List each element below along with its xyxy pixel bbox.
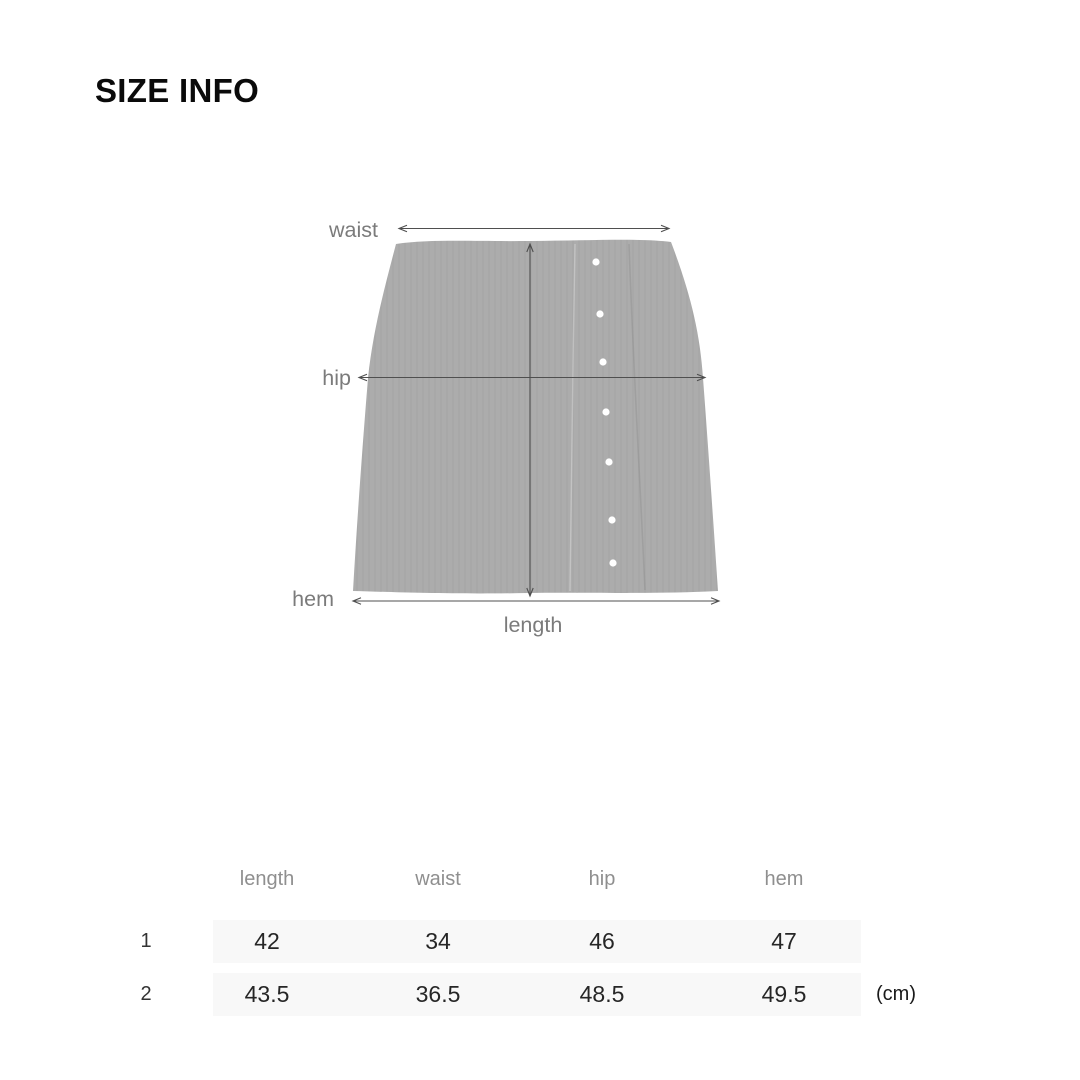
- button-icon: [599, 358, 606, 365]
- hip-label: hip: [322, 366, 351, 390]
- row-label: 1: [140, 920, 151, 963]
- unit-label: (cm): [876, 973, 916, 1016]
- table-header-waist: waist: [415, 866, 461, 892]
- cell-size1-length: 42: [254, 920, 280, 963]
- table-header-length: length: [240, 866, 295, 892]
- length-label: length: [504, 613, 563, 637]
- garment-measurement-diagram: waist hip hem length: [0, 0, 1080, 1080]
- hem-label: hem: [292, 587, 334, 611]
- button-icon: [609, 559, 616, 566]
- table-row-band: [213, 920, 861, 963]
- cell-size2-length: 43.5: [245, 973, 290, 1016]
- table-header-hip: hip: [589, 866, 616, 892]
- cell-size1-waist: 34: [425, 920, 451, 963]
- button-icon: [608, 516, 615, 523]
- skirt-illustration: [353, 240, 718, 594]
- cell-size2-waist: 36.5: [416, 973, 461, 1016]
- button-icon: [605, 458, 612, 465]
- cell-size1-hem: 47: [771, 920, 797, 963]
- waist-label: waist: [328, 218, 378, 242]
- cell-size2-hip: 48.5: [580, 973, 625, 1016]
- cell-size2-hem: 49.5: [762, 973, 807, 1016]
- button-icon: [602, 408, 609, 415]
- button-icon: [592, 258, 599, 265]
- button-icon: [596, 310, 603, 317]
- size-info-page: SIZE INFO: [0, 0, 1080, 1080]
- table-header-hem: hem: [765, 866, 804, 892]
- cell-size1-hip: 46: [589, 920, 615, 963]
- row-label: 2: [140, 973, 151, 1016]
